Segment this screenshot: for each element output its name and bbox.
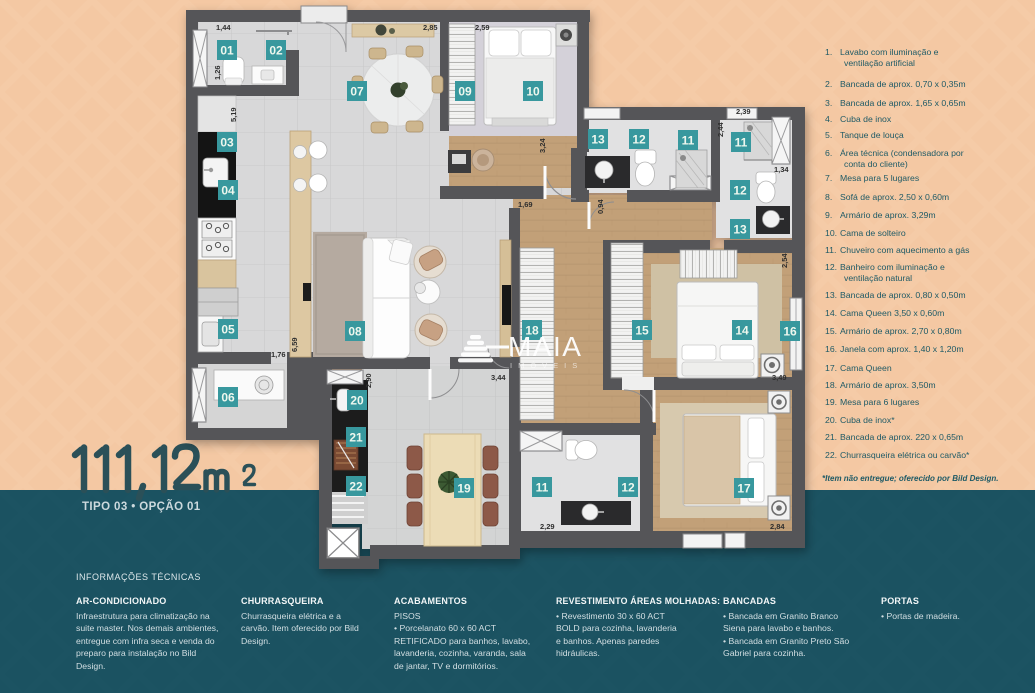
svg-text:MAIA: MAIA [508, 331, 582, 362]
svg-text:3,49: 3,49 [772, 373, 787, 382]
svg-text:07: 07 [350, 85, 364, 99]
svg-text:1,26: 1,26 [213, 65, 222, 80]
svg-text:16: 16 [783, 325, 797, 339]
svg-text:11: 11 [536, 481, 549, 495]
svg-text:1,76: 1,76 [271, 350, 286, 359]
svg-text:19: 19 [457, 482, 471, 496]
svg-text:12: 12 [621, 481, 635, 495]
svg-text:5,19: 5,19 [229, 107, 238, 122]
svg-text:IMÓVEIS: IMÓVEIS [510, 361, 583, 370]
svg-text:2,54: 2,54 [780, 253, 789, 268]
svg-text:04: 04 [221, 184, 235, 198]
svg-text:09: 09 [458, 85, 472, 99]
svg-text:2,90: 2,90 [364, 373, 373, 388]
svg-text:2,29: 2,29 [540, 522, 555, 531]
svg-text:1,44: 1,44 [216, 23, 231, 32]
svg-text:2,85: 2,85 [423, 23, 438, 32]
svg-text:02: 02 [269, 44, 283, 58]
svg-text:1,69: 1,69 [518, 200, 533, 209]
svg-text:15: 15 [635, 324, 649, 338]
svg-text:3,44: 3,44 [491, 373, 506, 382]
svg-text:14: 14 [735, 324, 749, 338]
svg-text:11: 11 [735, 136, 748, 150]
svg-text:21: 21 [349, 431, 363, 445]
svg-text:0,94: 0,94 [596, 199, 605, 214]
svg-text:08: 08 [348, 325, 362, 339]
svg-text:1,34: 1,34 [774, 165, 789, 174]
svg-text:2,84: 2,84 [770, 522, 785, 531]
svg-text:11: 11 [682, 134, 695, 148]
svg-text:17: 17 [737, 482, 751, 496]
svg-text:12: 12 [632, 133, 646, 147]
svg-text:06: 06 [221, 391, 235, 405]
svg-text:10: 10 [526, 85, 540, 99]
svg-text:20: 20 [350, 394, 364, 408]
svg-text:13: 13 [733, 223, 747, 237]
svg-text:12: 12 [733, 184, 747, 198]
svg-text:01: 01 [220, 44, 234, 58]
svg-text:3,24: 3,24 [538, 138, 547, 153]
svg-text:22: 22 [349, 480, 363, 494]
svg-text:03: 03 [220, 136, 234, 150]
svg-text:05: 05 [221, 323, 235, 337]
svg-text:2,44: 2,44 [716, 122, 725, 137]
svg-text:2,39: 2,39 [736, 107, 751, 116]
svg-text:13: 13 [591, 133, 605, 147]
svg-text:6,59: 6,59 [290, 337, 299, 352]
svg-text:2,59: 2,59 [475, 23, 490, 32]
